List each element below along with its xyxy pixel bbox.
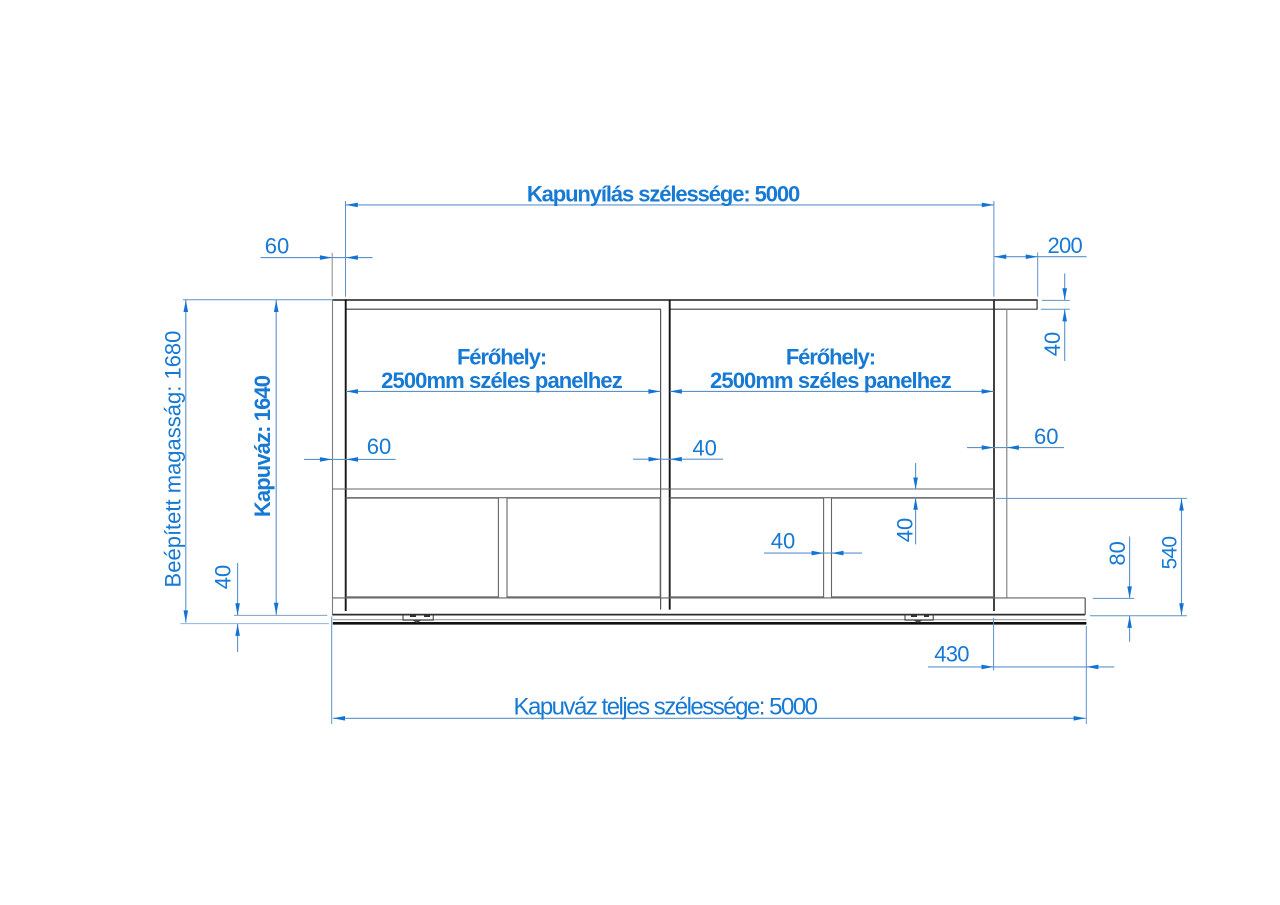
svg-text:60: 60	[1034, 424, 1058, 449]
svg-text:40: 40	[692, 435, 716, 460]
svg-text:Kapuváz teljes szélessége: 500: Kapuváz teljes szélessége: 5000	[513, 694, 817, 721]
svg-text:60: 60	[265, 234, 289, 259]
svg-text:40: 40	[771, 529, 795, 554]
svg-text:Kapuváz: 1640: Kapuváz: 1640	[250, 375, 275, 517]
svg-text:40: 40	[892, 518, 917, 542]
svg-text:2500mm széles panelhez: 2500mm széles panelhez	[381, 368, 623, 393]
svg-text:Beépített magasság: 1680: Beépített magasság: 1680	[161, 331, 186, 588]
svg-text:40: 40	[1040, 332, 1065, 356]
svg-text:Férőhely:: Férőhely:	[457, 344, 546, 369]
svg-text:80: 80	[1105, 541, 1130, 565]
svg-text:200: 200	[1047, 233, 1082, 258]
svg-text:Kapunyílás szélessége: 5000: Kapunyílás szélessége: 5000	[527, 182, 800, 207]
svg-text:540: 540	[1159, 537, 1182, 570]
svg-text:60: 60	[367, 434, 391, 459]
svg-text:430: 430	[934, 642, 969, 667]
svg-text:40: 40	[211, 565, 236, 589]
svg-text:Férőhely:: Férőhely:	[786, 344, 875, 369]
svg-text:2500mm széles panelhez: 2500mm széles panelhez	[710, 368, 952, 393]
